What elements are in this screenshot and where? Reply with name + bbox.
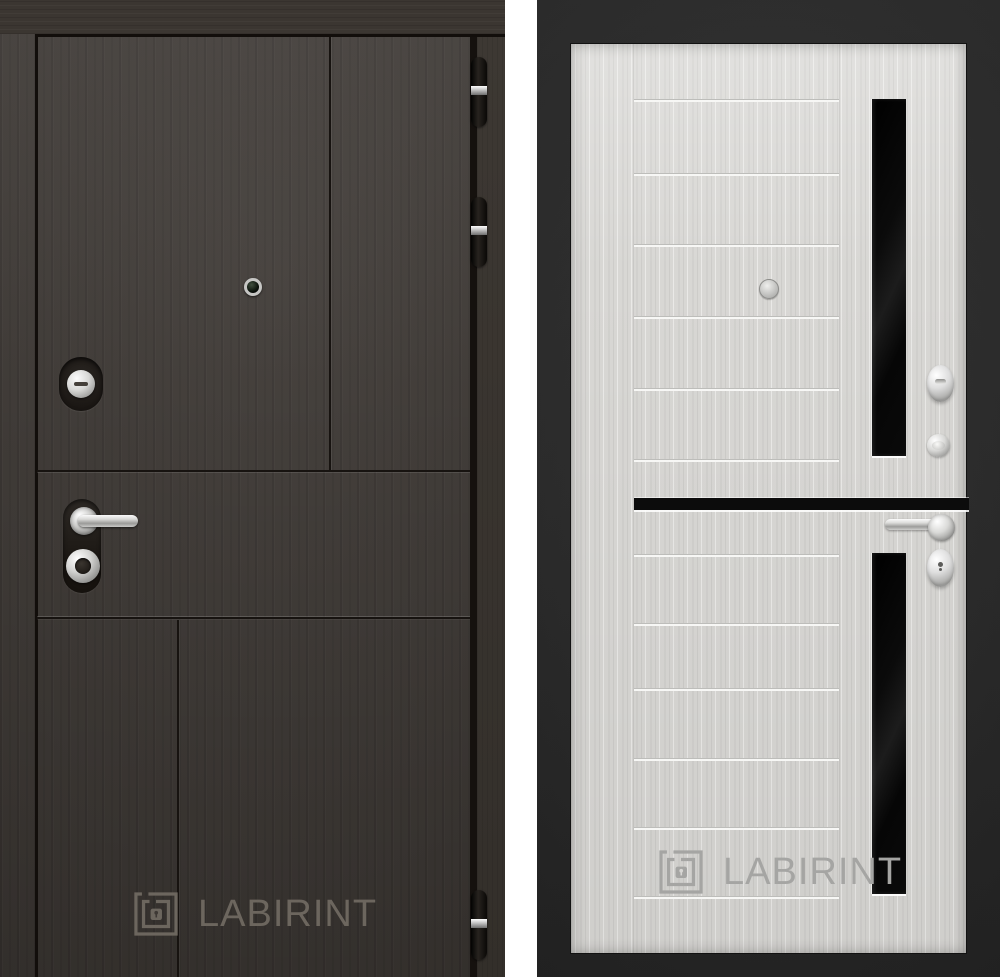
panel-seam-horizontal-lower [37,616,470,620]
groove-line [634,896,839,899]
groove-line [634,554,839,557]
cylinder-knob [927,434,950,457]
thumbturn-escutcheon-lower [927,549,954,587]
door-interior-white: LABIRINT [537,0,1000,977]
brand-watermark: LABIRINT [130,888,377,940]
black-glass-cross-stripe [634,498,969,510]
hinge [471,57,487,127]
thumbturn-escutcheon-upper [927,365,954,402]
peephole [244,278,262,296]
panel-seam-vertical-upper [329,37,332,470]
hinge-band [471,86,487,95]
groove-line [634,99,839,102]
keyhole-slot [74,382,88,386]
black-glass-insert-lower [872,553,906,894]
labirint-logo-icon [130,888,182,940]
upper-cylinder-lock-recess [59,357,103,411]
lower-cylinder-lock [66,549,100,583]
door-leaf-white [570,43,967,954]
groove-line [634,173,839,176]
hinge [471,197,487,267]
groove-line [634,244,839,247]
panel-seam-horizontal-upper [37,470,470,474]
hinge-band [471,919,487,928]
black-glass-insert-upper [872,99,906,456]
product-photo: LABIRINT [0,0,1000,977]
hinge [471,890,487,960]
upper-cylinder-lock [67,370,95,398]
groove-line [634,623,839,626]
brand-watermark-text: LABIRINT [198,888,377,940]
background-gap [505,0,537,977]
groove-line [634,316,839,319]
door-edge-strip [470,37,505,977]
door-exterior-dark: LABIRINT [0,0,505,977]
door-handle-lever [78,515,138,527]
leaf-left-seam [35,34,38,977]
hinge-band [471,226,487,235]
groove-line [634,688,839,691]
panel-seam-vertical-lower [177,620,180,977]
groove-line [634,459,839,462]
groove-line [634,388,839,391]
peephole-interior [759,279,779,299]
door-frame-top-rail [0,0,505,34]
handle-rosette-interior [928,514,955,541]
groove-line [634,827,839,830]
leaf-top-seam [35,34,505,37]
groove-line [634,758,839,761]
